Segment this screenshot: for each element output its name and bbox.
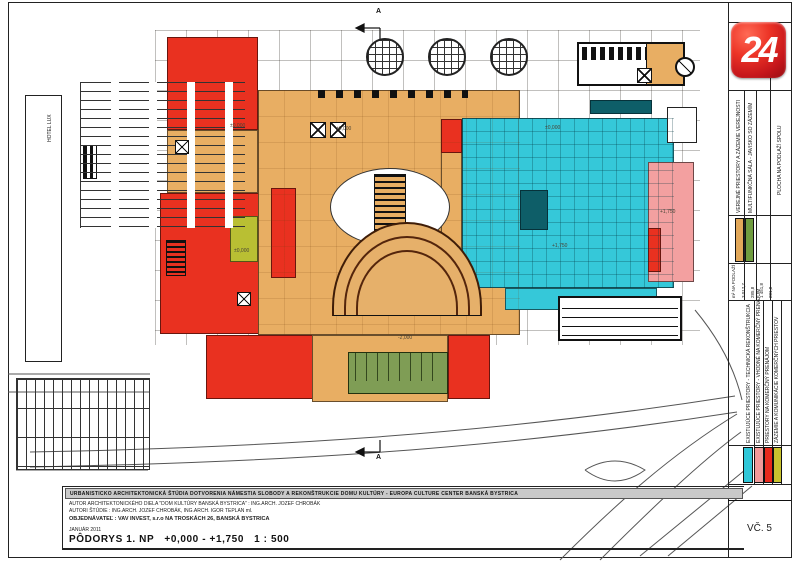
drawing-title: PÔDORYS 1. NP: [69, 534, 154, 545]
crossing-symbol: [637, 68, 652, 83]
hotel-lux-building: [25, 95, 62, 362]
client-line: OBJEDNÁVATEĽ : VAV INVEST, s.r.o NA TROS…: [69, 516, 269, 522]
legend-total-label: PLOCHA NA PODLAŽÍ SPOLU: [778, 126, 783, 195]
drawing-sheet: HOTEL LUX A A ±0,000±0,000±0,000+1,750+1…: [0, 0, 793, 561]
sidebar-divider: [728, 2, 729, 557]
legend-area-value: 1 451,8: [760, 283, 765, 298]
zone-red-block-in-cyan: [441, 119, 462, 153]
section-marker-top: A: [376, 8, 381, 15]
titleblock-rule: [62, 548, 744, 550]
drawing-title-line: PÔDORYS 1. NP +0,000 - +1,750 1 : 500: [69, 534, 289, 545]
turn-circle-icon: [675, 57, 695, 77]
level-label: ±0,000: [230, 124, 245, 129]
zone-red-escalator-strip: [271, 188, 296, 278]
stage-green: [348, 352, 448, 394]
zone-white-annex-in-cyan: [667, 107, 697, 143]
core-strip: [590, 100, 652, 114]
level-label: ±0,000: [336, 127, 351, 132]
date-line: JANUÁR 2011: [69, 527, 101, 533]
facade-teeth: [318, 90, 468, 98]
legend-area-value: m² NA PODLAŽÍ: [732, 265, 737, 298]
legend-swatch: [735, 218, 744, 262]
author-line-1: AUTOR ARCHITEKTONICKÉHO DIELA "DOM KULTÚ…: [69, 501, 320, 507]
sidebar-rule: [728, 263, 791, 264]
drawing-scale: 1 : 500: [254, 534, 289, 545]
sidebar-rule: [728, 215, 791, 216]
crossing-symbol: [310, 122, 326, 138]
legend-label: VEREJNÉ PRIESTORY A ZÁZEMIE VEREJNOSTI: [737, 100, 742, 213]
crossing-symbol: [175, 140, 189, 154]
level-label: ±0,000: [234, 249, 249, 254]
legend-area-value: 3 017,7: [742, 283, 747, 298]
parking-stalls-west: [16, 378, 150, 470]
parking-ramp: [558, 296, 682, 341]
stair-block-west: [166, 240, 186, 276]
parking-stalls-north: [80, 82, 245, 228]
zone-red-block-in-pink: [648, 228, 661, 272]
titleblock-rule: [62, 486, 744, 487]
tree-icon: [428, 38, 466, 76]
sidebar-col-rule: [756, 90, 757, 300]
project-title-bar: URBANISTICKO ARCHITEKTONICKÁ ŠTÚDIA DOTV…: [65, 488, 743, 499]
legend-area-value: 281,8: [769, 287, 774, 298]
zone-cyan-hall: [462, 118, 674, 288]
level-label: -2,000: [398, 336, 412, 341]
hotel-lux-label: HOTEL LUX: [48, 114, 53, 142]
legend-label: PRIESTORY NA KOMERČNÝ PRENÁJOM: [766, 347, 771, 443]
level-label: +1,750: [552, 244, 567, 249]
legend-label: EXISTUJÚCE PRIESTORY - TECHNICKÁ REKONŠT…: [747, 304, 752, 443]
level-label: ±0,000: [545, 126, 560, 131]
titleblock-rule: [62, 486, 63, 548]
zone-red-block-south-east: [448, 335, 490, 399]
legend-label: ZÁZEMIE A KOMUNIKÁCIE KOMERČNÝCH PRIESTO…: [775, 317, 780, 443]
core-block: [520, 190, 548, 230]
section-marker-bottom: A: [376, 454, 381, 461]
sidebar-rule: [728, 90, 791, 91]
level-label: +1,750: [660, 210, 675, 215]
legend-swatch: [754, 447, 764, 483]
legend-swatch: [743, 447, 753, 483]
legend-swatch: [773, 447, 782, 483]
stage-ridges: [355, 353, 441, 381]
tree-icon: [366, 38, 404, 76]
annex-parking-hatch: [582, 47, 646, 60]
ramp-lanes: [562, 300, 678, 337]
sidebar-col-rule: [744, 90, 745, 300]
tv-channel-24-logo: 24: [731, 22, 786, 78]
tree-icon: [490, 38, 528, 76]
crossing-symbol: [237, 292, 251, 306]
author-line-2: AUTORI ŠTÚDIE : ING.ARCH. JOZEF CHROBÁK,…: [69, 508, 252, 514]
drawing-levels: +0,000 - +1,750: [164, 534, 244, 545]
legend-swatch: [764, 447, 773, 483]
sidebar-rule: [728, 484, 791, 485]
legend-label: EXISTUJÚCE PRIESTORY - VHODNÉ NA KOMERČN…: [757, 289, 762, 443]
annex-building: [577, 42, 685, 86]
legend-area-value: 285,8: [751, 287, 756, 298]
legend-label: MULTIFUNKČNÁ SÁLA - JAVISKO SO ZÁZEMÍM: [749, 103, 754, 213]
legend-swatch: [745, 218, 754, 262]
